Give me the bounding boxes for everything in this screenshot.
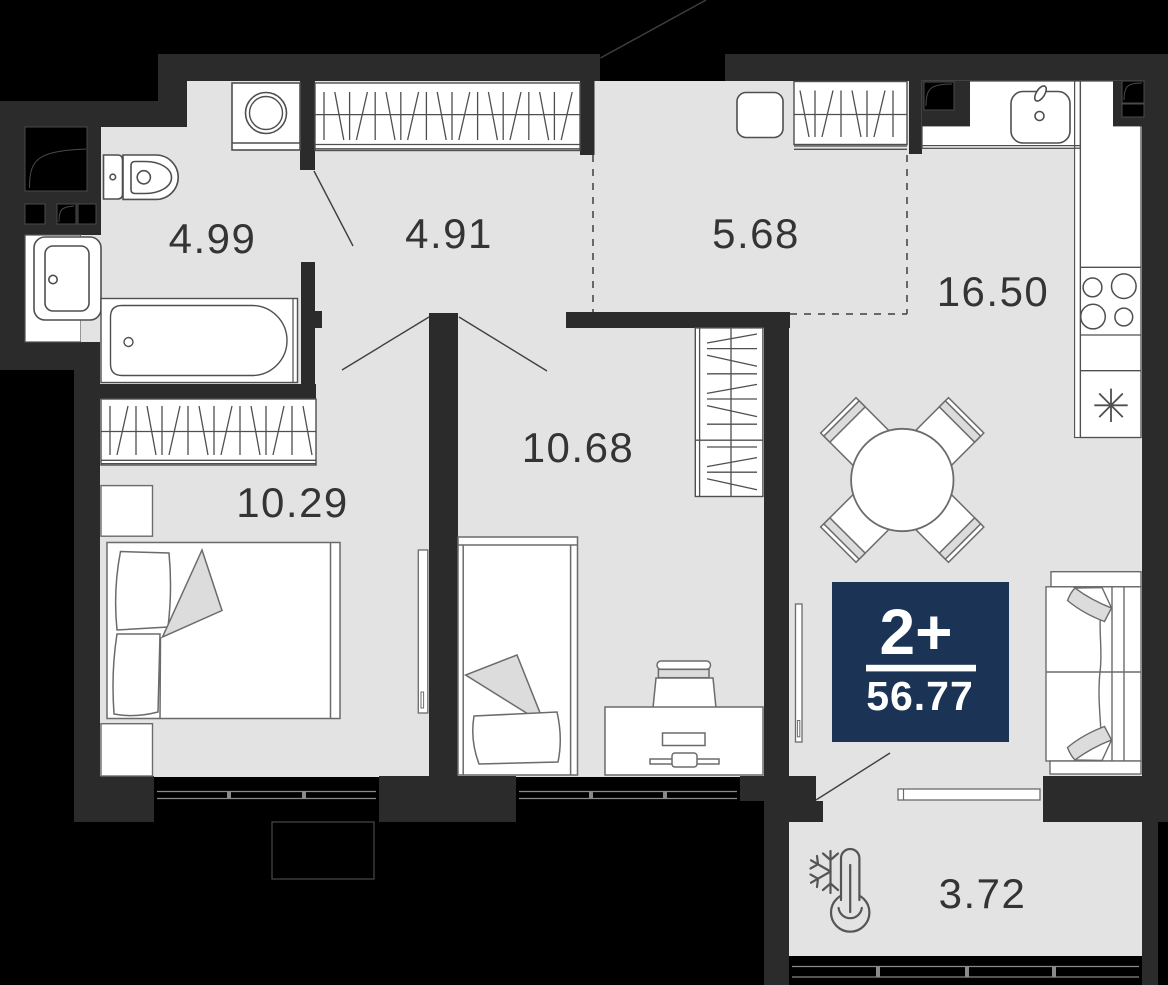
svg-text:56.77: 56.77 <box>866 673 974 719</box>
svg-text:4.91: 4.91 <box>405 210 493 257</box>
svg-text:10.68: 10.68 <box>522 424 635 471</box>
svg-text:3.72: 3.72 <box>939 870 1027 917</box>
svg-text:5.68: 5.68 <box>712 210 800 257</box>
svg-text:4.99: 4.99 <box>169 215 257 262</box>
svg-text:16.50: 16.50 <box>937 268 1050 315</box>
svg-text:2+: 2+ <box>880 596 953 668</box>
svg-text:10.29: 10.29 <box>236 479 349 526</box>
